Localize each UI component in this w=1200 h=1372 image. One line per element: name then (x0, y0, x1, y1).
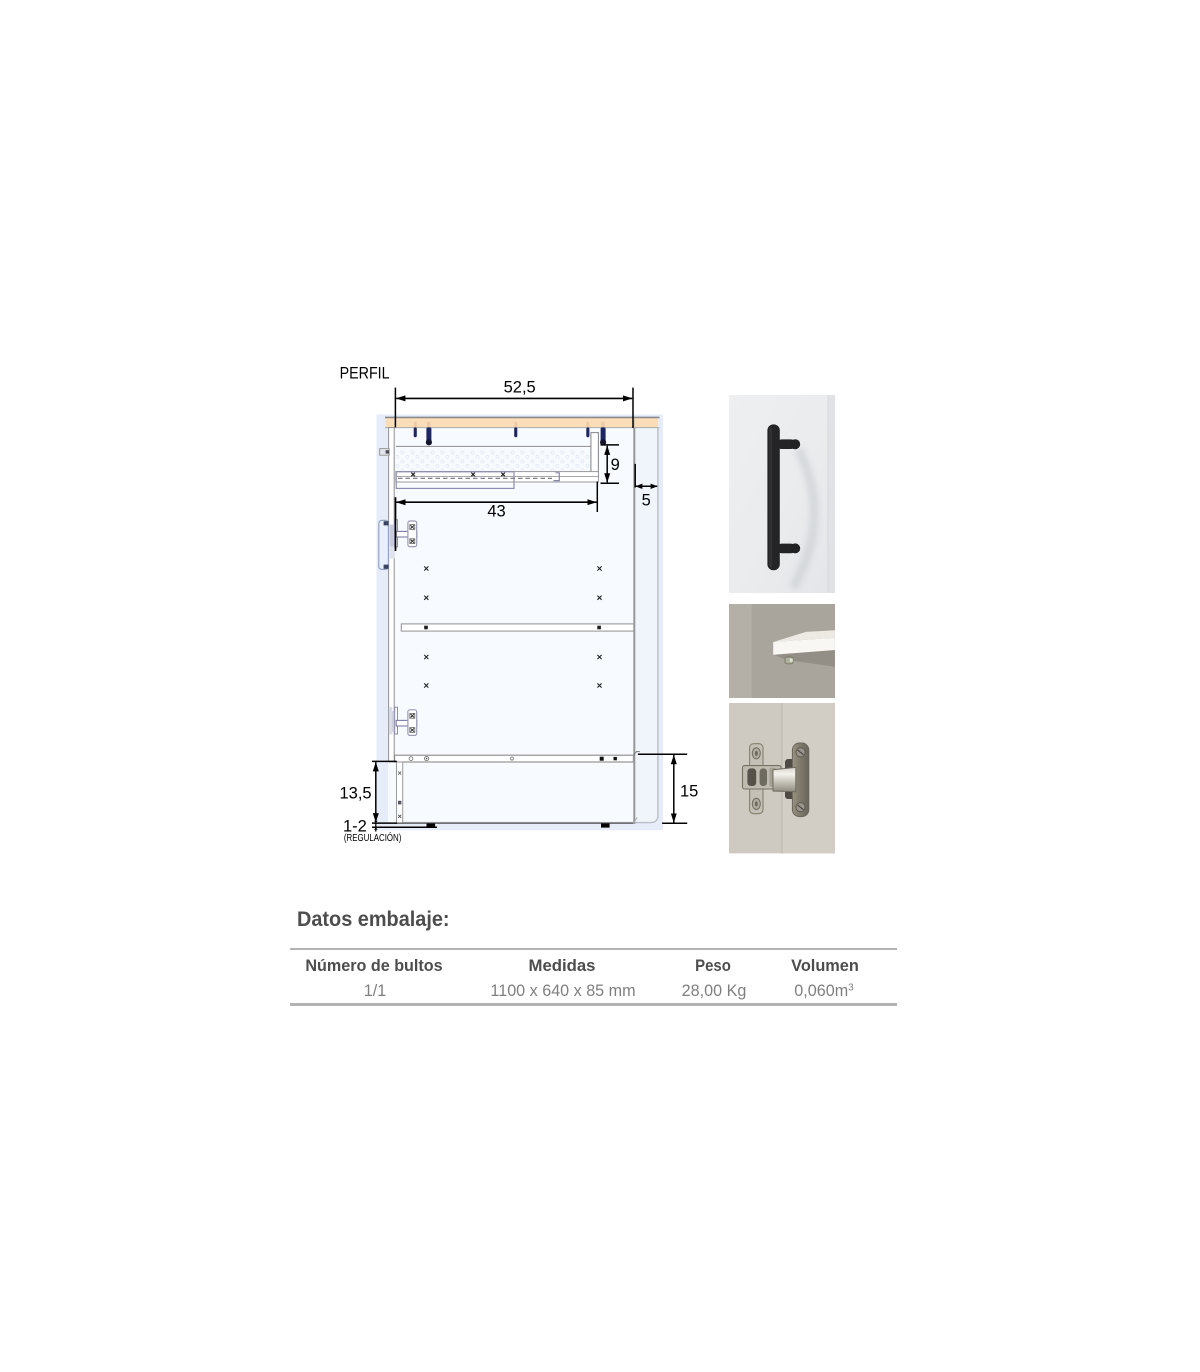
svg-text:15: 15 (680, 783, 698, 801)
svg-text:5: 5 (642, 491, 651, 509)
svg-text:13,5: 13,5 (339, 785, 371, 803)
svg-text:(REGULACIÓN): (REGULACIÓN) (344, 831, 402, 844)
svg-text:PERFIL: PERFIL (340, 365, 390, 383)
svg-text:43: 43 (487, 503, 505, 521)
svg-text:9: 9 (611, 456, 620, 474)
svg-text:52,5: 52,5 (504, 378, 536, 396)
